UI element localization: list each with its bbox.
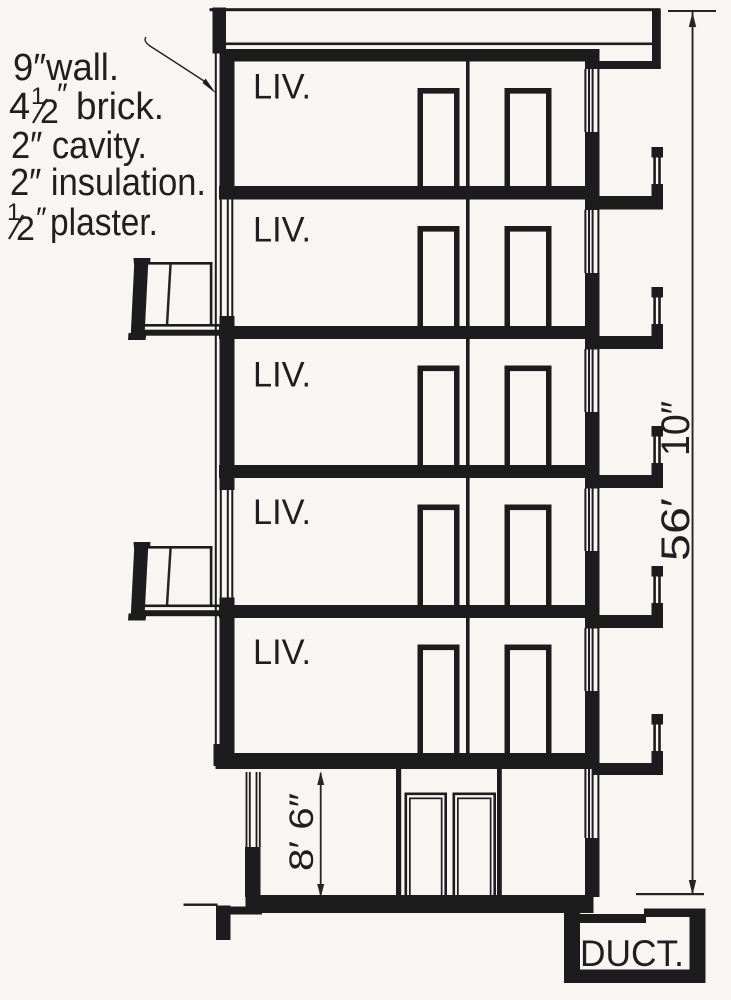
svg-text:56′: 56′ <box>654 498 698 561</box>
svg-text:DUCT.: DUCT. <box>580 932 684 974</box>
svg-text:LIV.: LIV. <box>253 211 311 250</box>
svg-text:″: ″ <box>57 78 68 111</box>
svg-text:″: ″ <box>36 202 47 235</box>
svg-text:LIV.: LIV. <box>253 356 311 395</box>
svg-text:LIV.: LIV. <box>253 633 311 672</box>
svg-text:2: 2 <box>16 210 35 248</box>
svg-text:LIV.: LIV. <box>253 67 311 106</box>
svg-text:LIV.: LIV. <box>253 493 311 532</box>
svg-text:4: 4 <box>9 86 30 128</box>
svg-text:2″ insulation.: 2″ insulation. <box>10 162 206 204</box>
svg-text:10″: 10″ <box>654 401 698 456</box>
svg-text:plaster.: plaster. <box>50 202 158 244</box>
svg-text:2″ cavity.: 2″ cavity. <box>11 125 147 167</box>
svg-text:brick.: brick. <box>76 86 164 128</box>
svg-text:8′ 6″: 8′ 6″ <box>283 793 321 871</box>
